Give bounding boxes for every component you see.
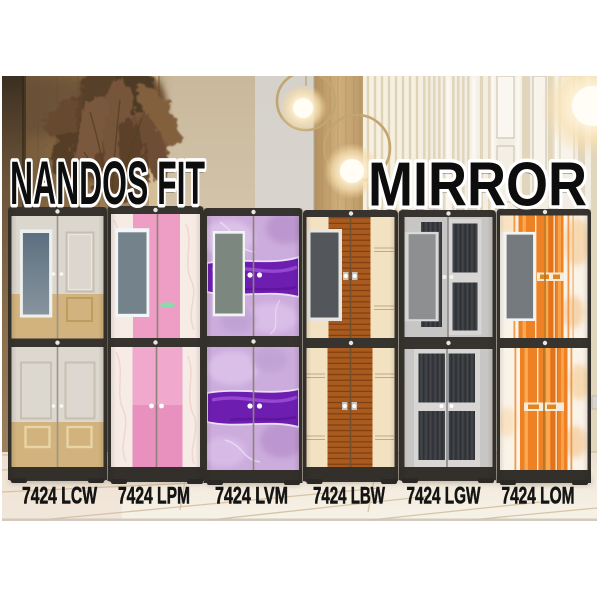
svg-text:NANDOS FIT: NANDOS FIT: [10, 149, 205, 217]
svg-text:7424 LGW: 7424 LGW: [407, 483, 481, 510]
svg-text:7424 LPM: 7424 LPM: [118, 483, 190, 510]
svg-text:7424 LBW: 7424 LBW: [313, 483, 385, 510]
svg-text:7424 LOM: 7424 LOM: [502, 483, 575, 510]
svg-text:MIRROR: MIRROR: [368, 151, 587, 220]
svg-text:7424 LVM: 7424 LVM: [215, 483, 288, 510]
svg-text:7424 LCW: 7424 LCW: [22, 483, 97, 510]
